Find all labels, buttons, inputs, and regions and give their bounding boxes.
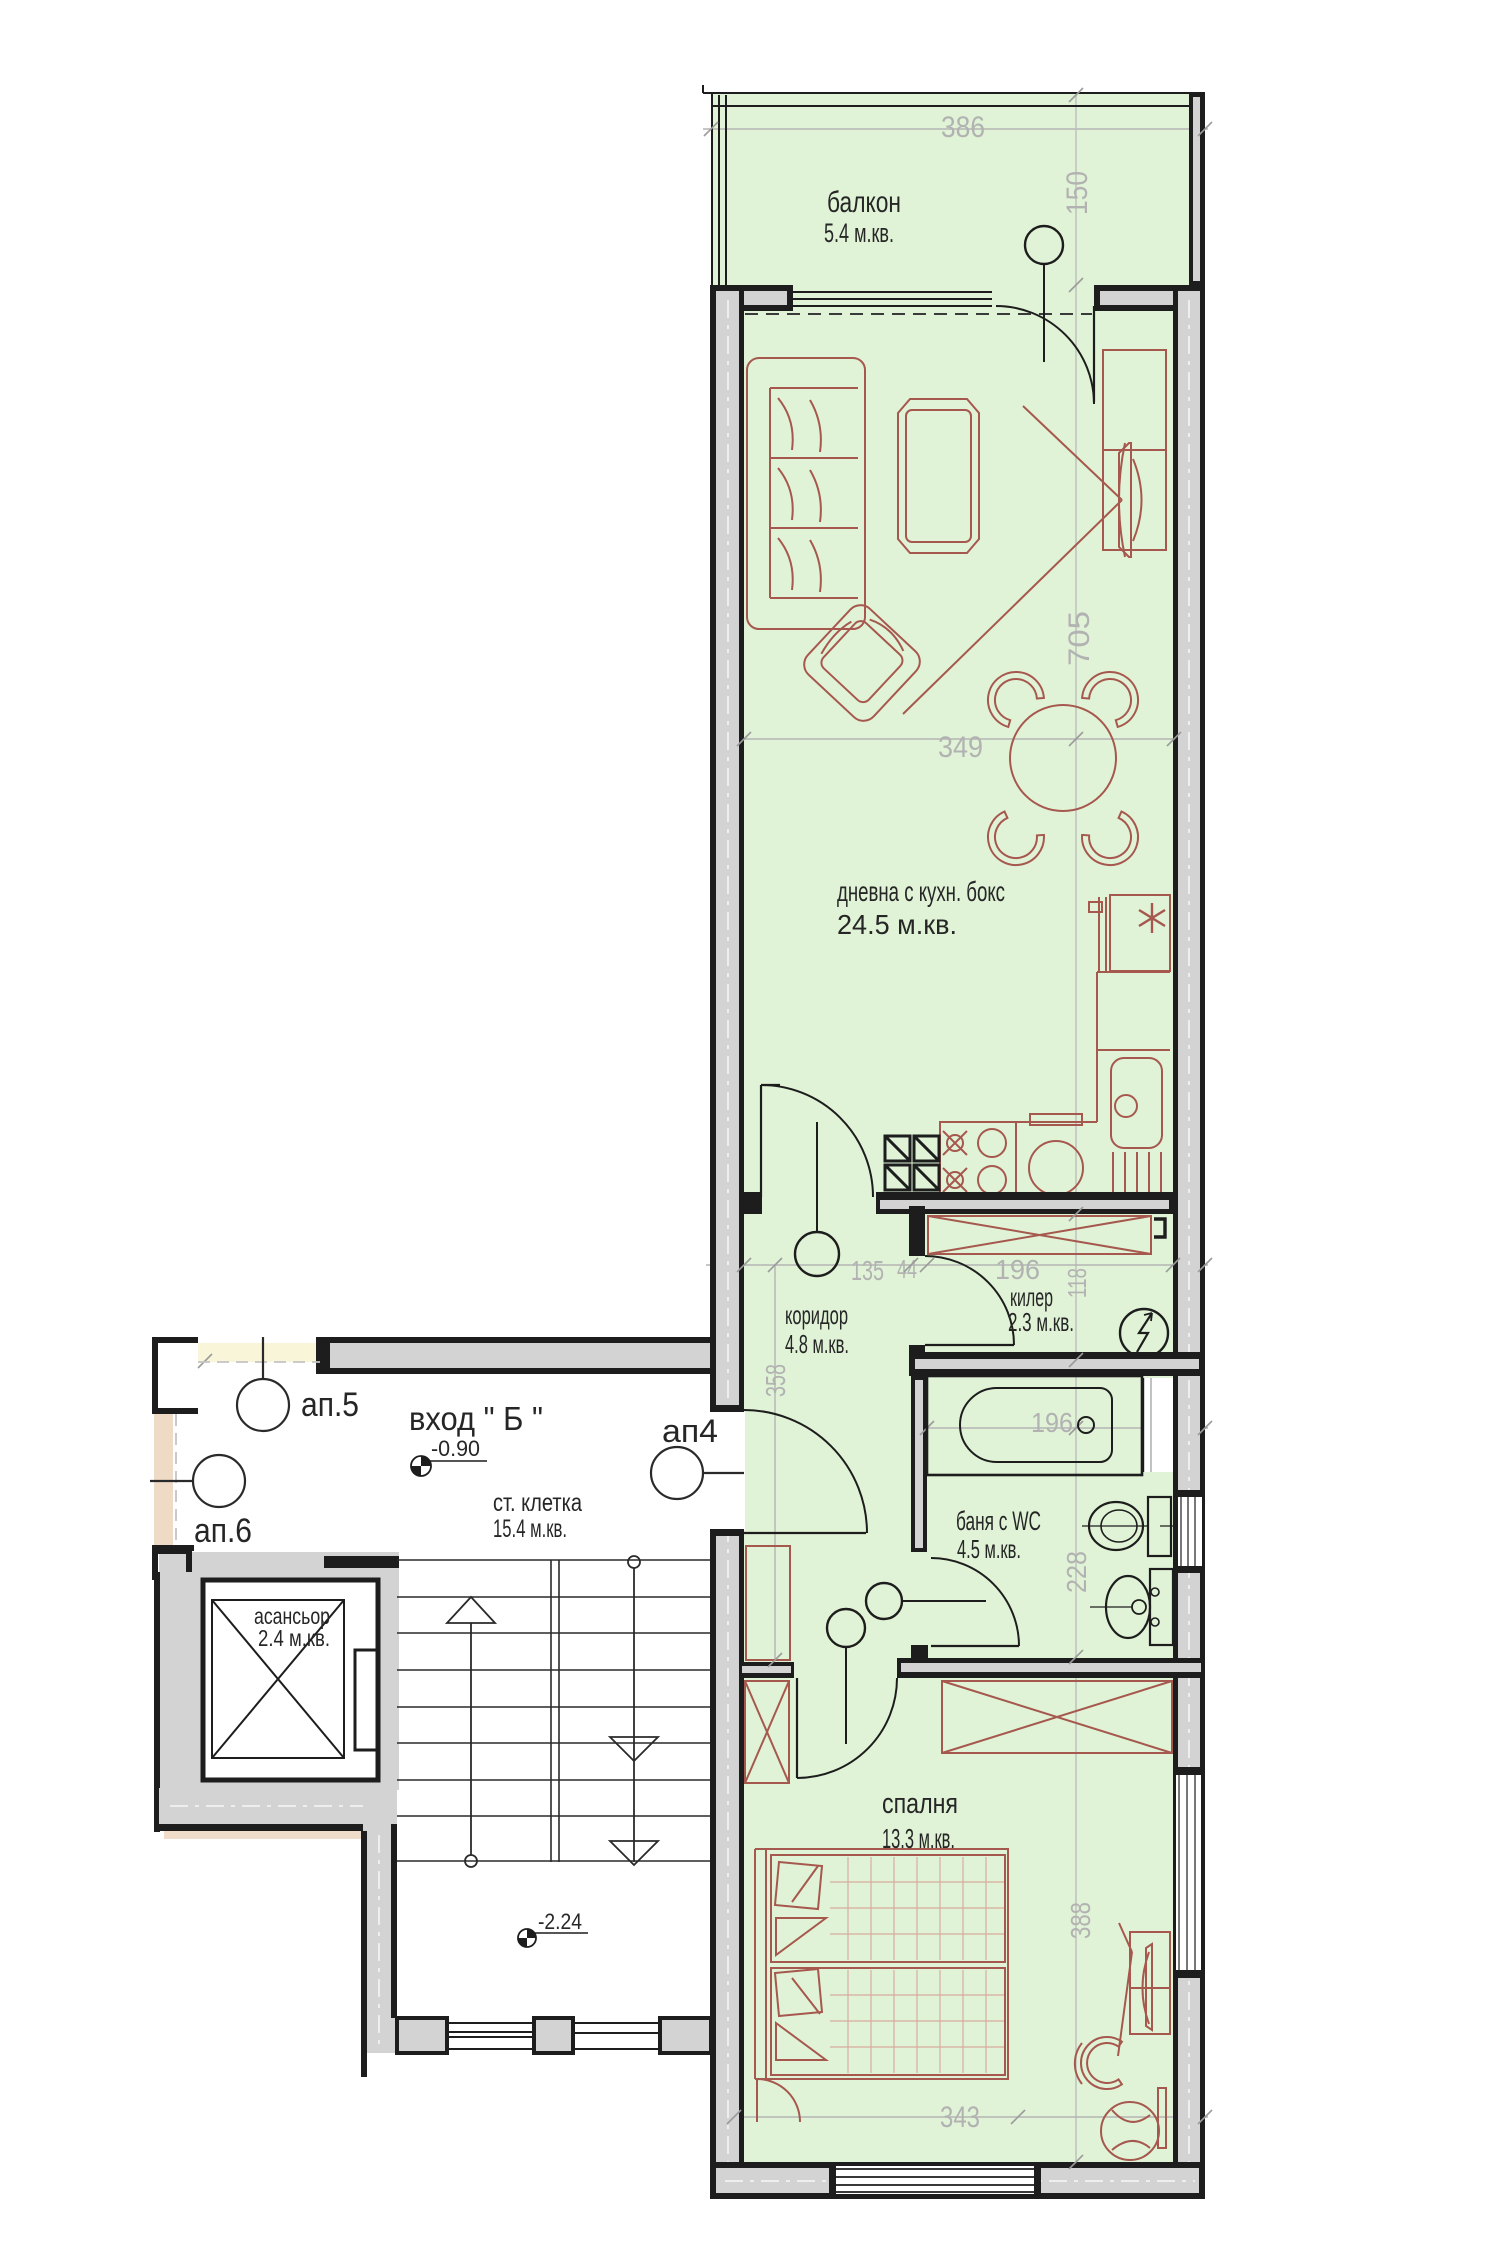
svg-text:ст. клетка: ст. клетка [493,1489,582,1517]
svg-text:4.8 м.кв.: 4.8 м.кв. [785,1329,849,1359]
svg-text:коридор: коридор [785,1300,848,1330]
svg-text:дневна с кухн. бокс: дневна с кухн. бокс [837,876,1005,907]
svg-text:5.4 м.кв.: 5.4 м.кв. [824,218,894,248]
svg-text:13.3 м.кв.: 13.3 м.кв. [882,1823,955,1854]
svg-text:4.5 м.кв.: 4.5 м.кв. [957,1534,1021,1564]
svg-text:спалня: спалня [882,1788,958,1820]
svg-text:24.5 м.кв.: 24.5 м.кв. [837,909,957,940]
svg-text:2.3 м.кв.: 2.3 м.кв. [1008,1307,1074,1337]
svg-text:ап4: ап4 [662,1413,718,1449]
svg-text:118: 118 [1062,1268,1092,1298]
svg-text:135: 135 [851,1255,884,1286]
svg-text:386: 386 [941,111,985,144]
svg-text:358: 358 [760,1364,791,1397]
svg-text:228: 228 [1061,1551,1092,1593]
svg-text:-2.24: -2.24 [538,1909,582,1934]
svg-text:ап.5: ап.5 [301,1386,359,1424]
svg-text:-0.90: -0.90 [431,1436,480,1461]
svg-text:150: 150 [1061,171,1094,215]
svg-text:вход " Б ": вход " Б " [409,1400,543,1437]
svg-text:2.4 м.кв.: 2.4 м.кв. [258,1625,330,1651]
svg-text:ап.6: ап.6 [194,1512,252,1550]
svg-text:балкон: балкон [827,186,901,219]
svg-text:баня с WC: баня с WC [956,1506,1041,1536]
svg-text:196: 196 [1031,1407,1073,1438]
svg-text:196: 196 [995,1254,1040,1285]
svg-text:349: 349 [938,731,983,764]
svg-text:388: 388 [1065,1902,1096,1939]
svg-text:705: 705 [1063,611,1096,666]
svg-text:343: 343 [940,2101,980,2134]
svg-text:15.4 м.кв.: 15.4 м.кв. [493,1515,567,1543]
